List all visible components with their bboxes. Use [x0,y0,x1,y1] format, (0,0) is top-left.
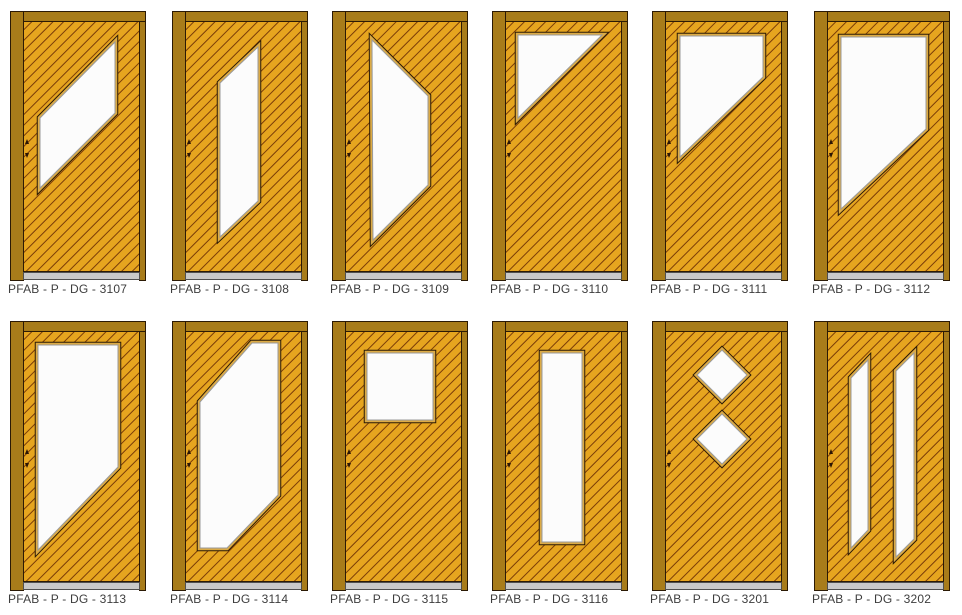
frame-top-rail [173,12,308,22]
door-elevation-drawing [814,11,950,281]
door-label: PFAB - P - DG - 3201 [650,592,788,606]
door-item-3110[interactable]: PFAB - P - DG - 3110 [492,11,628,296]
door-item-3111[interactable]: PFAB - P - DG - 3111 [652,11,788,296]
threshold [828,273,944,280]
door-catalog-sheet: PFAB - P - DG - 3107PFAB - P - DG - 3108… [0,0,962,615]
frame-latch-strip [462,332,468,591]
threshold [186,583,302,590]
frame-latch-strip [140,22,146,281]
frame-top-rail [173,322,308,332]
frame-hinge-post [653,322,666,591]
door-item-3112[interactable]: PFAB - P - DG - 3112 [814,11,950,296]
door-elevation-drawing [172,11,308,281]
door-item-3113[interactable]: PFAB - P - DG - 3113 [10,321,146,606]
door-item-3115[interactable]: PFAB - P - DG - 3115 [332,321,468,606]
threshold [666,273,782,280]
threshold [24,273,140,280]
threshold [186,273,302,280]
frame-top-rail [815,12,950,22]
door-label: PFAB - P - DG - 3110 [490,282,628,296]
door-item-3201[interactable]: PFAB - P - DG - 3201 [652,321,788,606]
frame-top-rail [333,12,468,22]
frame-hinge-post [815,322,828,591]
frame-latch-strip [462,22,468,281]
threshold [24,583,140,590]
door-elevation-drawing [10,321,146,591]
glass-panel [542,353,582,542]
frame-top-rail [653,322,788,332]
door-elevation-drawing [814,321,950,591]
glass-panel [220,47,258,237]
frame-latch-strip [302,332,308,591]
door-elevation-drawing [332,321,468,591]
frame-hinge-post [11,12,24,281]
frame-latch-strip [944,332,950,591]
door-elevation-drawing [652,321,788,591]
door-label: PFAB - P - DG - 3107 [8,282,146,296]
frame-hinge-post [815,12,828,281]
door-label: PFAB - P - DG - 3108 [170,282,308,296]
door-label: PFAB - P - DG - 3113 [8,592,146,606]
frame-top-rail [815,322,950,332]
threshold [828,583,944,590]
frame-top-rail [11,322,146,332]
door-item-3108[interactable]: PFAB - P - DG - 3108 [172,11,308,296]
door-label: PFAB - P - DG - 3115 [330,592,468,606]
frame-top-rail [493,322,628,332]
threshold [346,583,462,590]
threshold [506,273,622,280]
frame-top-rail [493,12,628,22]
door-label: PFAB - P - DG - 3116 [490,592,628,606]
threshold [346,273,462,280]
door-elevation-drawing [332,11,468,281]
frame-latch-strip [622,22,628,281]
frame-hinge-post [333,322,346,591]
frame-hinge-post [493,322,506,591]
frame-latch-strip [782,332,788,591]
glass-panel [896,353,914,557]
frame-latch-strip [140,332,146,591]
threshold [666,583,782,590]
door-label: PFAB - P - DG - 3114 [170,592,308,606]
door-elevation-drawing [652,11,788,281]
door-label: PFAB - P - DG - 3111 [650,282,788,296]
frame-latch-strip [302,22,308,281]
glass-panel [367,353,433,420]
door-item-3107[interactable]: PFAB - P - DG - 3107 [10,11,146,296]
door-label: PFAB - P - DG - 3202 [812,592,950,606]
frame-top-rail [11,12,146,22]
door-item-3116[interactable]: PFAB - P - DG - 3116 [492,321,628,606]
door-item-3109[interactable]: PFAB - P - DG - 3109 [332,11,468,296]
door-elevation-drawing [492,321,628,591]
frame-hinge-post [333,12,346,281]
frame-hinge-post [173,322,186,591]
glass-panel [851,360,868,548]
threshold [506,583,622,590]
frame-latch-strip [782,22,788,281]
door-elevation-drawing [172,321,308,591]
frame-latch-strip [622,332,628,591]
door-item-3114[interactable]: PFAB - P - DG - 3114 [172,321,308,606]
frame-top-rail [333,322,468,332]
door-label: PFAB - P - DG - 3112 [812,282,950,296]
door-elevation-drawing [492,11,628,281]
frame-top-rail [653,12,788,22]
door-label: PFAB - P - DG - 3109 [330,282,468,296]
frame-hinge-post [653,12,666,281]
frame-latch-strip [944,22,950,281]
door-elevation-drawing [10,11,146,281]
frame-hinge-post [173,12,186,281]
frame-hinge-post [11,322,24,591]
door-leaf [828,332,944,582]
door-item-3202[interactable]: PFAB - P - DG - 3202 [814,321,950,606]
frame-hinge-post [493,12,506,281]
